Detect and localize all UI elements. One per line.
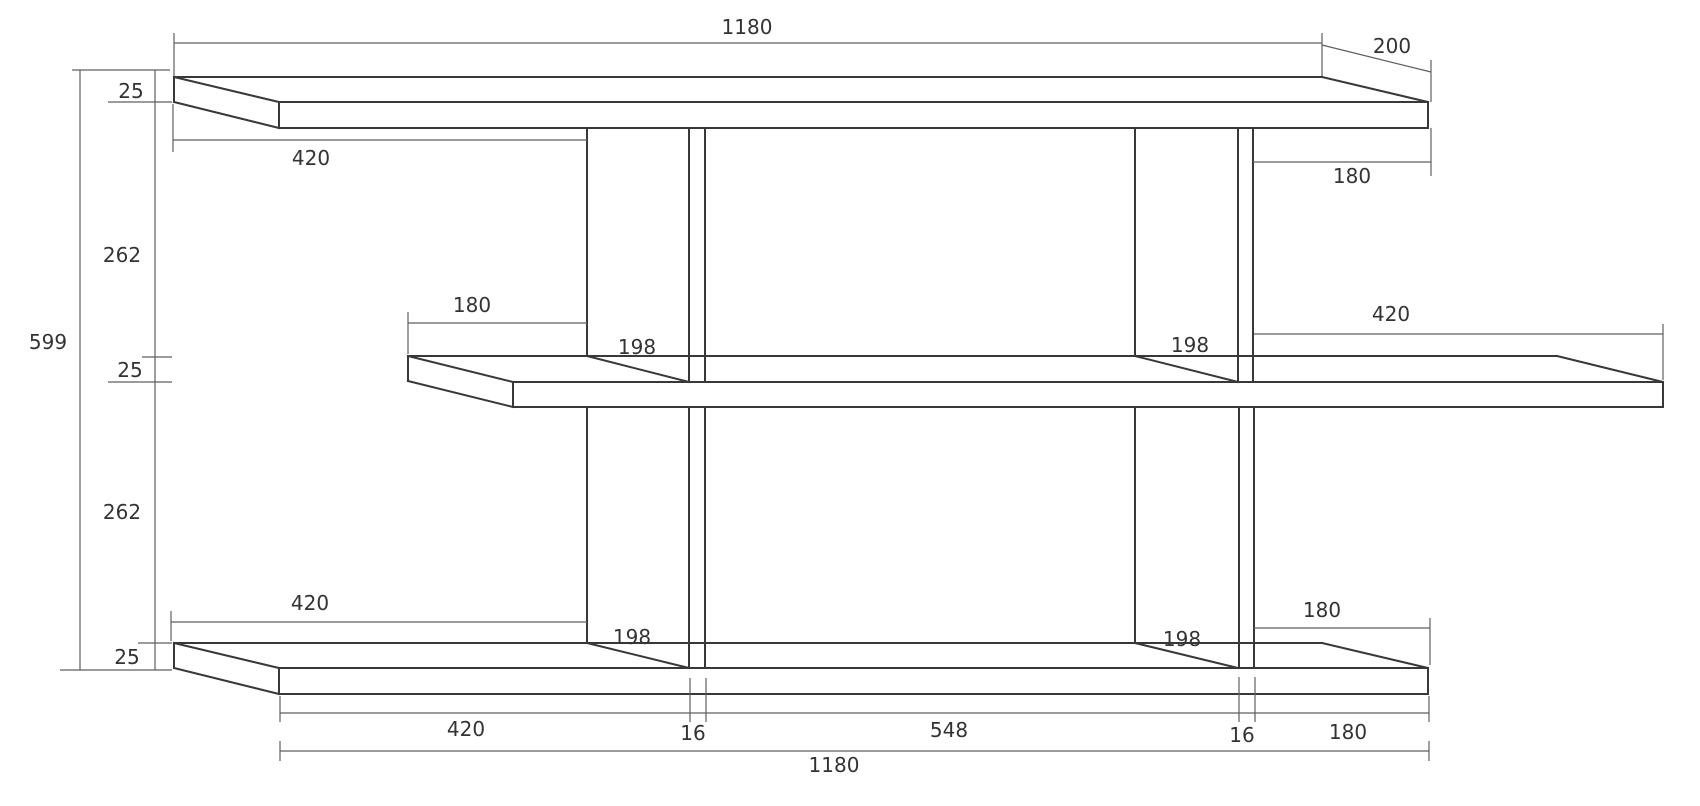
top-shelf-edge [174, 102, 279, 128]
top-shelf [174, 77, 1428, 128]
dim-label-top-width: 1180 [722, 15, 773, 39]
middle-shelf [408, 356, 1663, 407]
dim-middle-left-180 [408, 312, 587, 354]
divider-upper-right-edge [1135, 356, 1238, 382]
dim-label-middle-left-180: 180 [453, 293, 491, 317]
divider-upper-left-edge [587, 356, 689, 382]
dim-label-seg-16-left: 16 [680, 721, 705, 745]
top-shelf-edge [1322, 77, 1428, 102]
top-shelf-edge [174, 77, 279, 102]
dim-top-width-1180 [174, 33, 1322, 76]
dim-label-thickness-bottom: 25 [114, 645, 139, 669]
middle-shelf-edge [408, 356, 513, 382]
dim-bottom-segments-row [280, 677, 1429, 722]
dim-label-divider-ul-198: 198 [618, 335, 656, 359]
dim-label-gap-upper-262: 262 [103, 243, 141, 267]
dim-label-bottom-overall: 1180 [809, 753, 860, 777]
dim-label-thickness-middle: 25 [117, 358, 142, 382]
dim-label-top-right-180: 180 [1333, 164, 1371, 188]
dim-label-overall-height: 599 [29, 330, 67, 354]
dim-label-middle-right-420: 420 [1372, 302, 1410, 326]
dim-label-gap-lower-262: 262 [103, 500, 141, 524]
dim-label-seg-16-right: 16 [1229, 723, 1254, 747]
dim-label-divider-ur-198: 198 [1171, 333, 1209, 357]
dim-label-seg-420: 420 [447, 717, 485, 741]
dim-label-bottom-right-180: 180 [1303, 598, 1341, 622]
bottom-shelf-edge [1322, 643, 1428, 668]
dim-bottom-right-180 [1254, 618, 1430, 665]
dim-label-depth: 200 [1373, 34, 1411, 58]
middle-shelf-edge [408, 381, 513, 407]
dim-bottom-left-420 [171, 611, 587, 641]
bottom-shelf-edge [174, 643, 279, 668]
shelf-technical-drawing: 1180200254201802621804205991981982526242… [0, 0, 1700, 806]
dim-label-seg-180: 180 [1329, 720, 1367, 744]
dim-left-height-column [60, 70, 172, 670]
dim-label-divider-lr-198: 198 [1163, 627, 1201, 651]
technical-drawing-page: 1180200254201802621804205991981982526242… [0, 0, 1700, 806]
dim-label-top-left-420: 420 [292, 146, 330, 170]
dim-middle-right-420 [1254, 324, 1663, 380]
middle-shelf-edge [1557, 356, 1663, 382]
dim-label-bottom-left-420: 420 [291, 591, 329, 615]
dim-label-thickness-top: 25 [118, 79, 143, 103]
dim-label-divider-ll-198: 198 [613, 625, 651, 649]
dim-label-seg-548: 548 [930, 718, 968, 742]
bottom-shelf-edge [174, 668, 279, 694]
